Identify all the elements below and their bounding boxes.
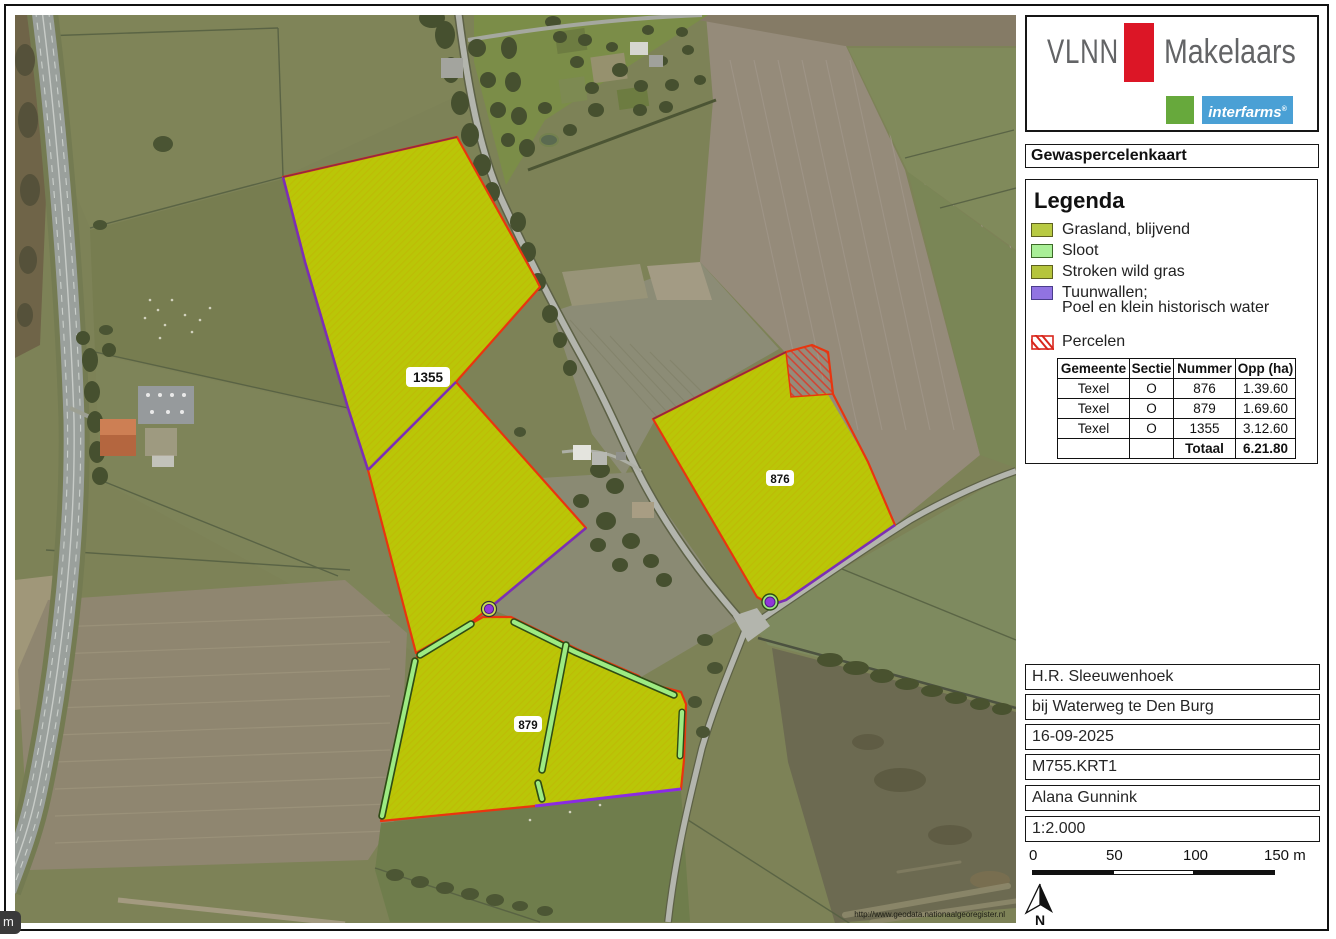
svg-text:879: 879 [518,720,537,732]
svg-text:876: 876 [770,474,789,486]
svg-text:1355: 1355 [413,370,444,385]
svg-text:http://www.geodata.nationaalge: http://www.geodata.nationaalgeoregister.… [854,910,1005,919]
svg-text:N: N [1035,912,1045,928]
